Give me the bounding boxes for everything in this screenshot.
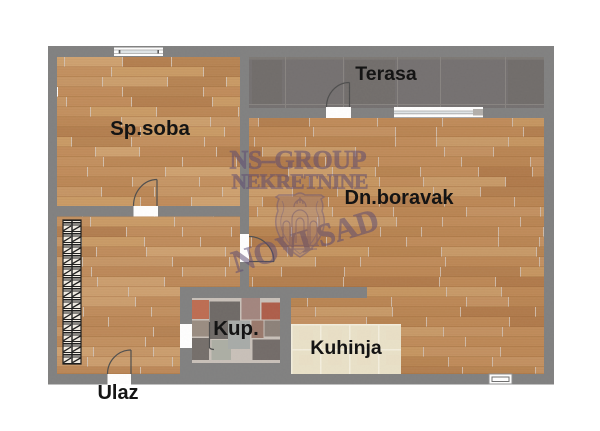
svg-text:Ulaz: Ulaz: [97, 382, 138, 404]
svg-text:Dn.boravak: Dn.boravak: [345, 187, 455, 209]
svg-text:Kuhinja: Kuhinja: [310, 337, 382, 359]
svg-text:Terasa: Terasa: [355, 63, 417, 85]
svg-text:Sp.soba: Sp.soba: [110, 117, 190, 140]
svg-text:Kup.: Kup.: [213, 317, 259, 340]
